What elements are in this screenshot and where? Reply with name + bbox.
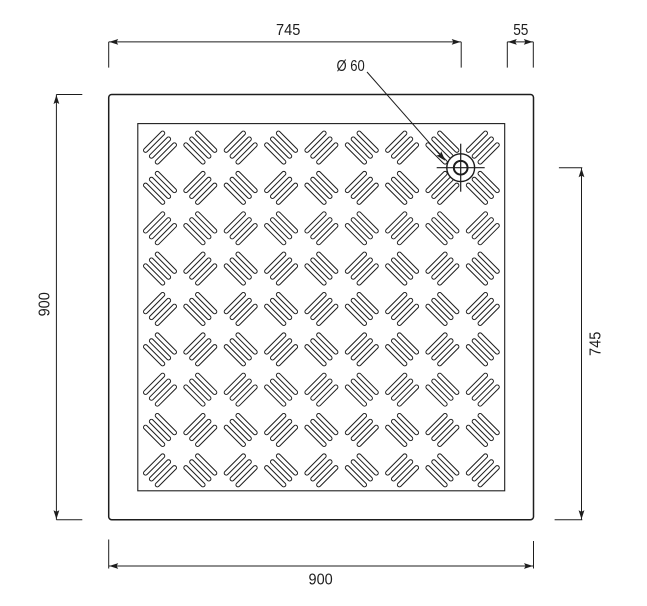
svg-text:745: 745 [276, 22, 300, 39]
svg-text:745: 745 [588, 332, 605, 356]
svg-text:55: 55 [513, 22, 528, 39]
svg-text:900: 900 [309, 571, 333, 588]
svg-text:900: 900 [36, 292, 53, 316]
svg-text:Ø 60: Ø 60 [337, 58, 365, 75]
